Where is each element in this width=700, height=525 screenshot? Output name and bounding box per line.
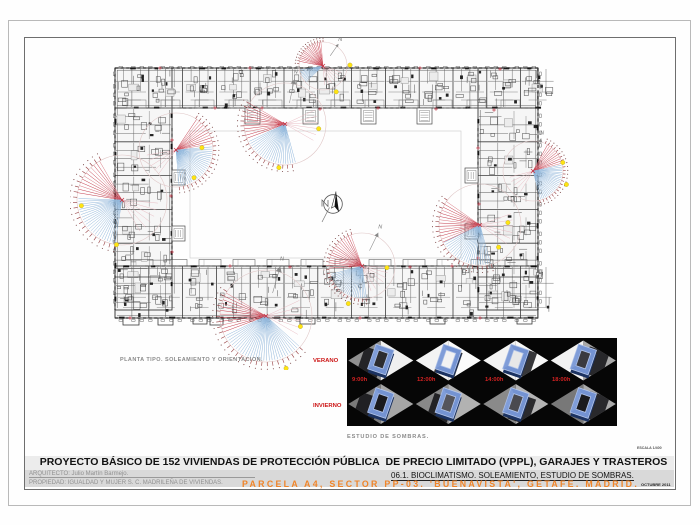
svg-text:14:00h: 14:00h bbox=[485, 377, 504, 383]
svg-text:12:00h: 12:00h bbox=[417, 377, 436, 383]
svg-text:9:00h: 9:00h bbox=[352, 377, 368, 383]
svg-text:N: N bbox=[280, 256, 284, 262]
svg-text:N: N bbox=[338, 37, 342, 43]
svg-text:N: N bbox=[294, 70, 298, 76]
svg-text:18:00h: 18:00h bbox=[552, 377, 571, 383]
svg-text:N: N bbox=[378, 225, 382, 231]
svg-text:N: N bbox=[540, 130, 544, 136]
